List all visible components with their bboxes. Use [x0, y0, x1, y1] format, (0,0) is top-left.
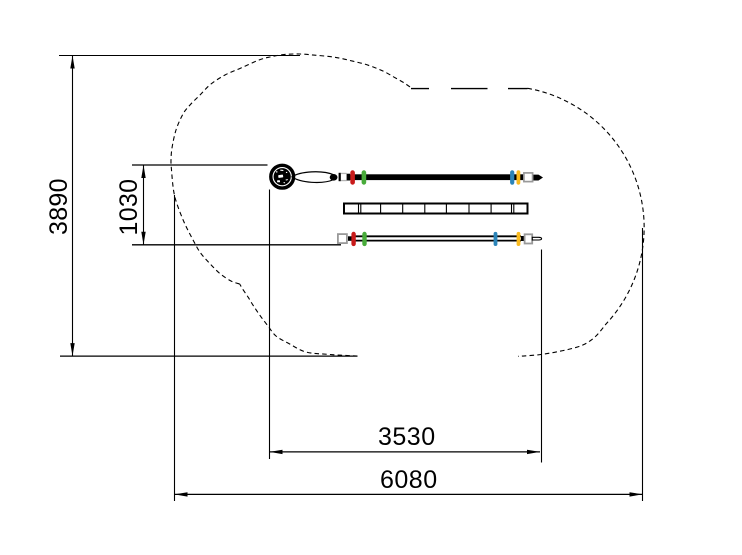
- svg-text:3530: 3530: [378, 423, 436, 451]
- svg-text:6080: 6080: [380, 466, 438, 494]
- svg-text:1030: 1030: [115, 179, 143, 236]
- svg-text:3890: 3890: [45, 178, 73, 235]
